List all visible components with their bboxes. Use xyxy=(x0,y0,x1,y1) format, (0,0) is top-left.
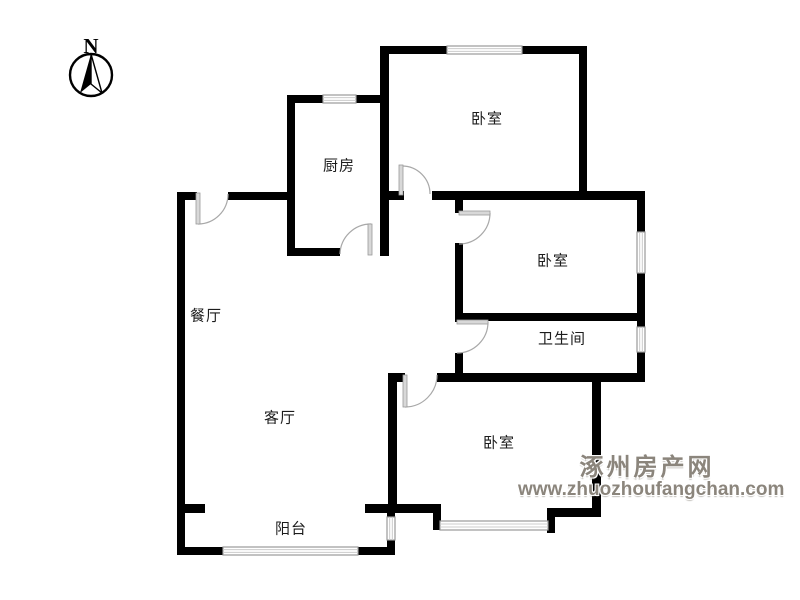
wall-segment xyxy=(455,243,463,322)
window xyxy=(323,95,356,103)
wall-segment xyxy=(357,547,395,555)
room-label-kitchen: 厨房 xyxy=(323,155,355,176)
wall-segment xyxy=(579,46,587,199)
watermark: 涿州房产网 www.zhuozhoufangchan.com xyxy=(518,455,776,500)
door-leaf xyxy=(457,320,488,324)
wall-segment xyxy=(388,373,397,513)
door-swing-arc xyxy=(459,213,490,244)
wall-segment xyxy=(455,195,463,213)
watermark-site-name: 涿州房产网 xyxy=(518,455,776,480)
window xyxy=(440,521,548,530)
wall-segment xyxy=(547,508,601,517)
door-swing-arc xyxy=(457,322,488,353)
wall-segment xyxy=(393,504,441,513)
north-compass: N xyxy=(63,26,119,102)
room-label-bedroom-bottom: 卧室 xyxy=(483,432,515,453)
wall-segment xyxy=(287,95,295,256)
room-label-dining-room: 餐厅 xyxy=(190,305,222,326)
door-swing-arc xyxy=(405,375,437,407)
window xyxy=(387,517,395,540)
door-swing-arc xyxy=(402,166,430,194)
wall-segment xyxy=(432,191,645,200)
wall-segment xyxy=(228,192,290,200)
floor-plan-drawing xyxy=(0,0,800,600)
door-leaf xyxy=(459,211,490,215)
room-label-living-room: 客厅 xyxy=(264,407,296,428)
compass-needle-dark-half xyxy=(80,54,91,93)
compass-needle-light-half xyxy=(91,54,102,93)
wall-segment xyxy=(380,46,389,256)
wall-segment xyxy=(177,504,205,513)
wall-segment xyxy=(177,192,185,555)
wall-segment xyxy=(463,313,645,321)
door-leaf xyxy=(403,375,407,407)
room-label-bedroom-top: 卧室 xyxy=(471,108,503,129)
wall-segment xyxy=(177,547,223,555)
door-leaf xyxy=(368,224,372,255)
window xyxy=(637,232,645,273)
door-leaf xyxy=(399,165,403,195)
wall-segment xyxy=(387,505,395,518)
floor-plan-canvas: 厨房卧室卧室卫生间餐厅客厅卧室阳台 N 涿州房产网 www.zhuozhoufa… xyxy=(0,0,800,600)
room-label-bedroom-middle: 卧室 xyxy=(537,250,569,271)
door-leaf xyxy=(196,193,200,224)
room-label-bathroom: 卫生间 xyxy=(538,328,586,349)
room-label-balcony: 阳台 xyxy=(275,518,307,539)
window xyxy=(637,327,645,352)
wall-segment xyxy=(437,373,645,382)
door-swing-arc xyxy=(198,194,228,224)
door-swing-arc xyxy=(340,224,371,254)
wall-segment xyxy=(287,248,340,256)
watermark-url: www.zhuozhoufangchan.com xyxy=(518,480,776,500)
window xyxy=(223,547,358,555)
wall-segment xyxy=(455,353,463,375)
window xyxy=(447,46,522,54)
